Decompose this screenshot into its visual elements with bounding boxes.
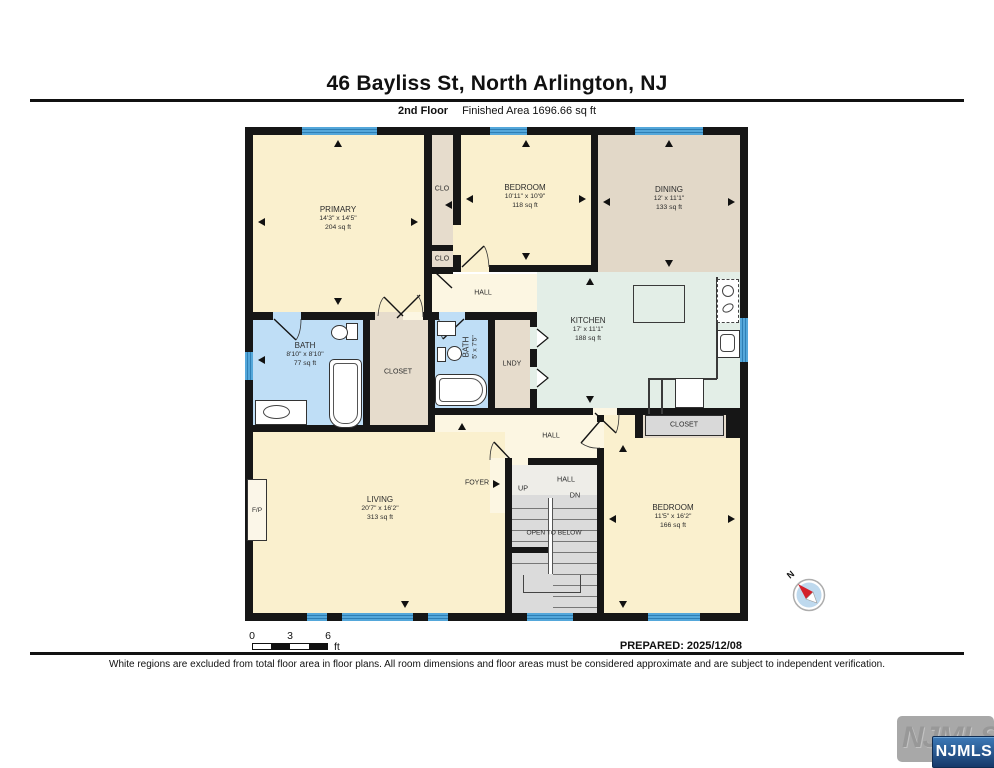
toilet-tank [437, 347, 446, 362]
scale-segment [309, 644, 328, 649]
wall [740, 127, 748, 621]
room-label-laundry: LNDY [503, 359, 522, 368]
room-label-closet-hall: CLOSET [384, 367, 412, 376]
window [342, 613, 413, 621]
door-opening [530, 367, 537, 389]
wall [635, 415, 643, 438]
small-bathtub [435, 374, 487, 406]
wall [591, 135, 598, 272]
room-label-foyer: FOYER [465, 478, 489, 487]
wall [726, 415, 740, 438]
room-label-closet-bedroom: CLOSET [670, 420, 698, 429]
door-opening [375, 312, 403, 320]
floor-subtitle: 2nd FloorFinished Area 1696.66 sq ft [0, 105, 994, 117]
appliance-knob [722, 285, 734, 297]
wall [505, 465, 512, 613]
door-opening [273, 312, 301, 320]
disclaimer-text: White regions are excluded from total fl… [0, 659, 994, 670]
wall [488, 312, 495, 415]
room-label-hall-upper: HALL [474, 288, 492, 297]
room-label-clo-upper: CLO [435, 184, 449, 193]
room-label-bath-main: BATH 8'10" x 8'10" 77 sq ft [286, 341, 323, 369]
wall [424, 135, 432, 319]
window [307, 613, 327, 621]
window [428, 613, 448, 621]
door-opening [439, 312, 465, 320]
floorplan-page: 46 Bayliss St, North Arlington, NJ 2nd F… [0, 0, 994, 768]
compass-rose: N [783, 566, 833, 618]
room-label-dining: DINING 12' x 11'1" 133 sq ft [654, 185, 685, 213]
room-label-clo-lower: CLO [435, 254, 449, 263]
open-to-below-label: OPEN TO BELOW [526, 530, 581, 539]
stair-hall-label: HALL [557, 474, 575, 483]
wall [363, 312, 370, 432]
window [245, 352, 253, 380]
stair-dn-label: DN [570, 490, 580, 499]
fireplace-label: F/P [252, 507, 262, 515]
scale-segment [271, 644, 290, 649]
page-title: 46 Bayliss St, North Arlington, NJ [0, 72, 994, 96]
door-opening [453, 225, 461, 255]
door-opening [593, 408, 617, 415]
scale-bar [252, 643, 328, 650]
wall [432, 267, 453, 274]
room-label-hall-mid: HALL [542, 431, 560, 440]
stair-flight-up [512, 498, 548, 547]
window [740, 318, 748, 362]
stair-flight-lower [512, 553, 548, 573]
small-bath-sink [437, 321, 456, 336]
bathtub [329, 359, 362, 428]
room-label-bath-small: BATH 5' x 7'5" [461, 335, 480, 359]
floorplan-drawing: PRIMARY 14'3" x 14'5" 204 sq ft CLO CLO … [245, 127, 748, 621]
counter-edge [648, 378, 650, 414]
wall [597, 465, 604, 613]
wall [432, 245, 453, 251]
compass-north-label: N [785, 569, 796, 581]
room-label-living: LIVING 20'7" x 16'2" 313 sq ft [361, 495, 398, 523]
foyer-floor [490, 458, 505, 513]
door-opening [461, 265, 489, 272]
window [490, 127, 527, 135]
scale-tick-6: 6 [325, 630, 331, 642]
door-opening [597, 422, 604, 448]
sink-basin [720, 334, 735, 352]
stair-up-label: UP [518, 483, 528, 492]
scale-tick-3: 3 [287, 630, 293, 642]
njmls-logo-badge: NJMLS [932, 736, 994, 768]
njmls-logo-text: NJMLS [936, 743, 993, 761]
counter-edge [661, 378, 663, 414]
scale-tick-0: 0 [249, 630, 255, 642]
finished-area-label: Finished Area 1696.66 sq ft [462, 105, 596, 117]
wall [428, 408, 748, 415]
toilet-bowl [331, 325, 348, 340]
door-opening [512, 458, 528, 465]
footer-divider [30, 652, 964, 655]
window [302, 127, 377, 135]
room-label-primary: PRIMARY 14'3" x 14'5" 204 sq ft [319, 205, 356, 233]
room-label-bedroom-lower: BEDROOM 11'5" x 16'2" 166 sq ft [652, 503, 693, 531]
window [527, 613, 573, 621]
kitchen-island [633, 285, 685, 323]
window [648, 613, 700, 621]
door-opening [530, 327, 537, 349]
stair-walkline [523, 575, 581, 593]
header-divider [30, 99, 964, 102]
floor-label: 2nd Floor [398, 105, 448, 117]
room-label-bedroom-top: BEDROOM 10'11" x 10'9" 118 sq ft [504, 183, 545, 211]
stove [675, 378, 704, 408]
toilet-bowl [447, 346, 462, 361]
room-label-kitchen: KITCHEN 17' x 11'1" 188 sq ft [570, 316, 605, 344]
window [635, 127, 703, 135]
prepared-date: PREPARED: 2025/12/08 [442, 640, 742, 652]
vanity-sink [263, 405, 290, 419]
